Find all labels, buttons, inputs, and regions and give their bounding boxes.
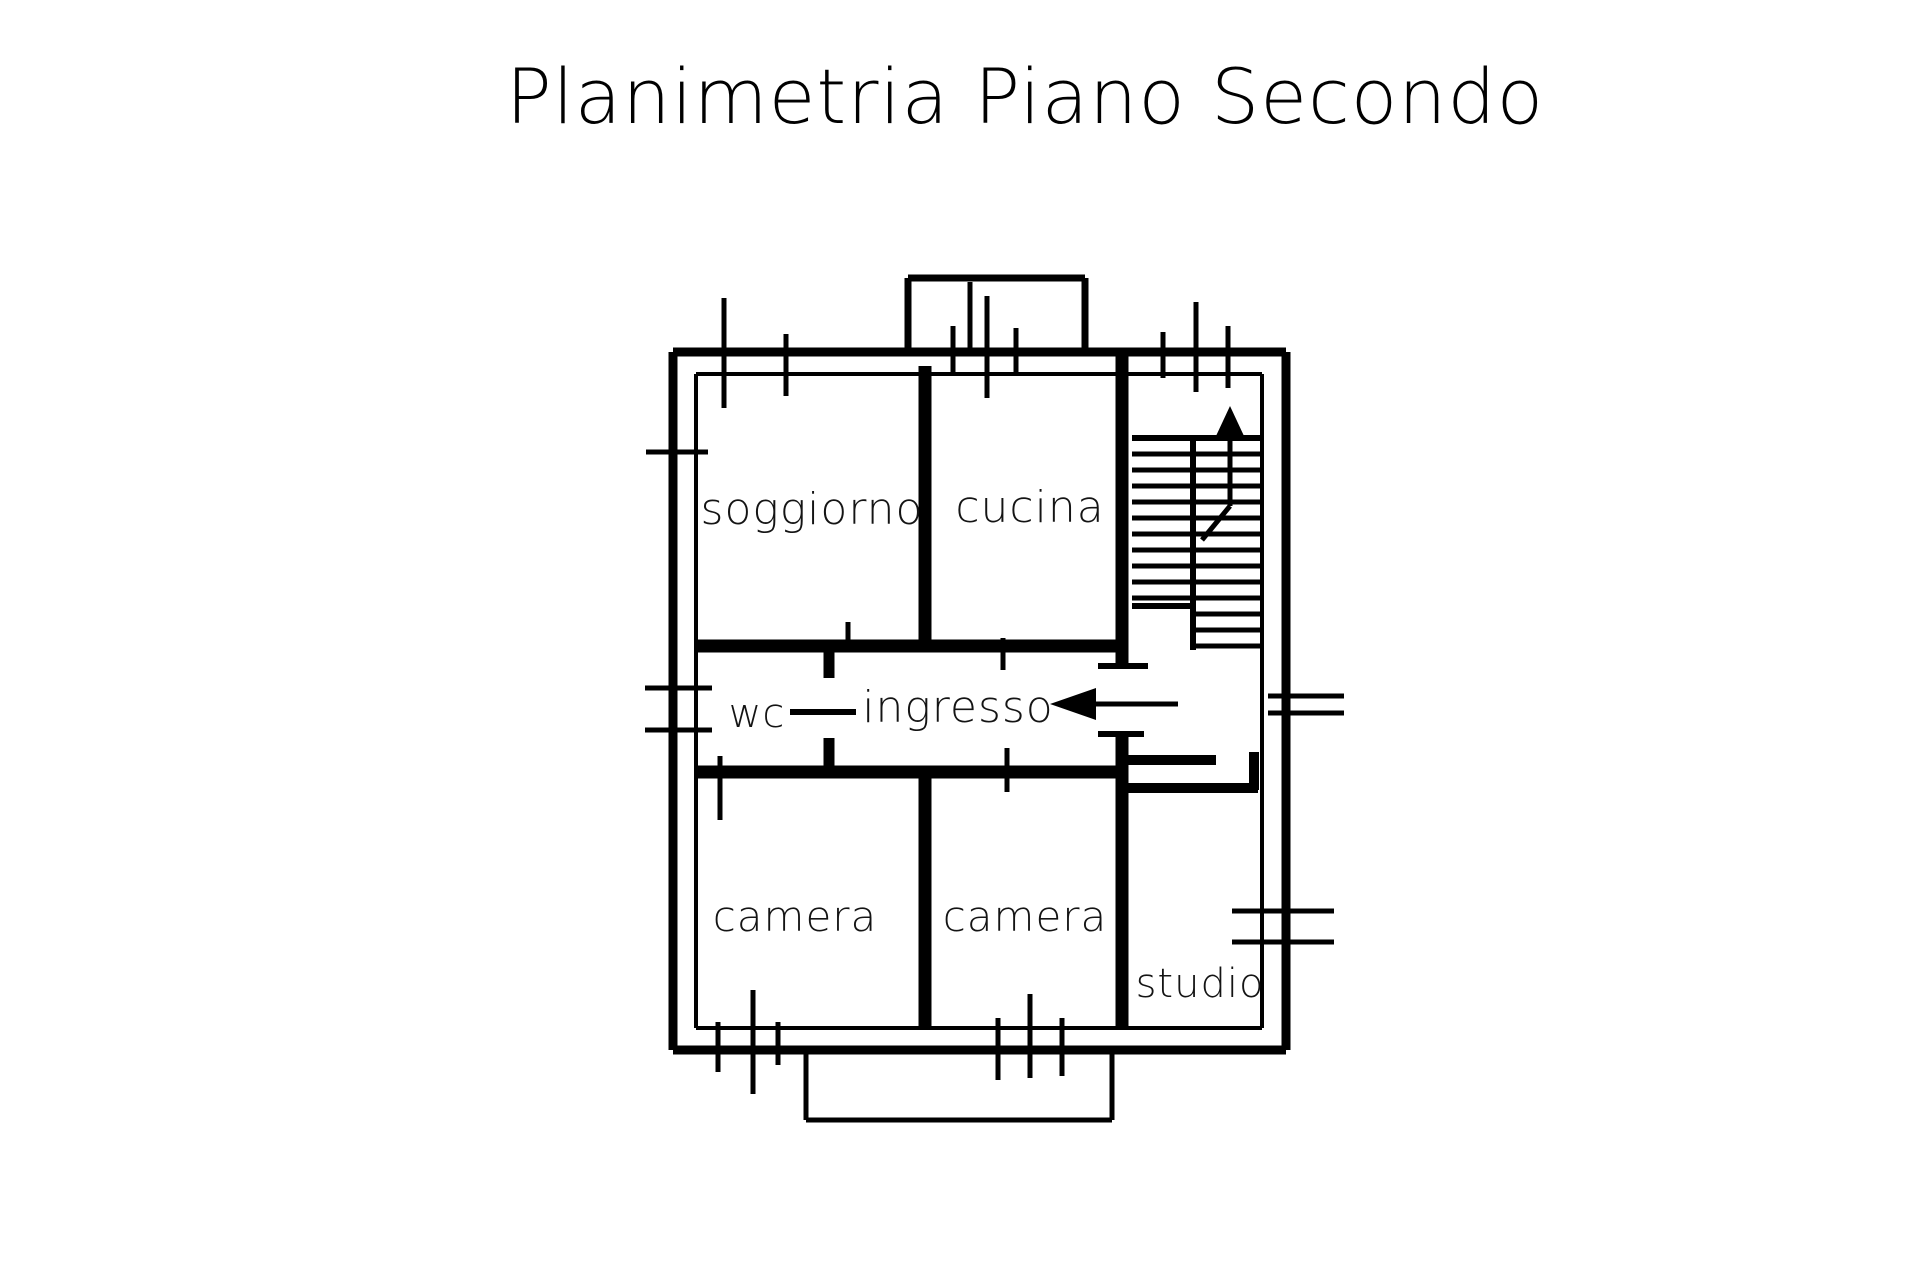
- entrance-arrow: [1050, 688, 1178, 720]
- staircase: [1132, 438, 1262, 650]
- room-label-ingresso: ingresso: [862, 682, 1053, 733]
- room-labels-layer: soggiornocucinawcingressocameracamerastu…: [701, 482, 1265, 1007]
- room-label-camera-1: camera: [713, 892, 878, 941]
- room-label-cucina: cucina: [955, 482, 1104, 533]
- room-label-soggiorno: soggiorno: [701, 484, 924, 535]
- floorplan-page: Planimetria Piano Secondo soggiornocucin…: [0, 0, 1920, 1280]
- room-label-wc: wc: [729, 691, 786, 737]
- room-label-camera-2: camera: [943, 892, 1108, 941]
- room-label-studio: studio: [1136, 961, 1265, 1007]
- floor-plan: soggiornocucinawcingressocameracamerastu…: [0, 0, 1920, 1280]
